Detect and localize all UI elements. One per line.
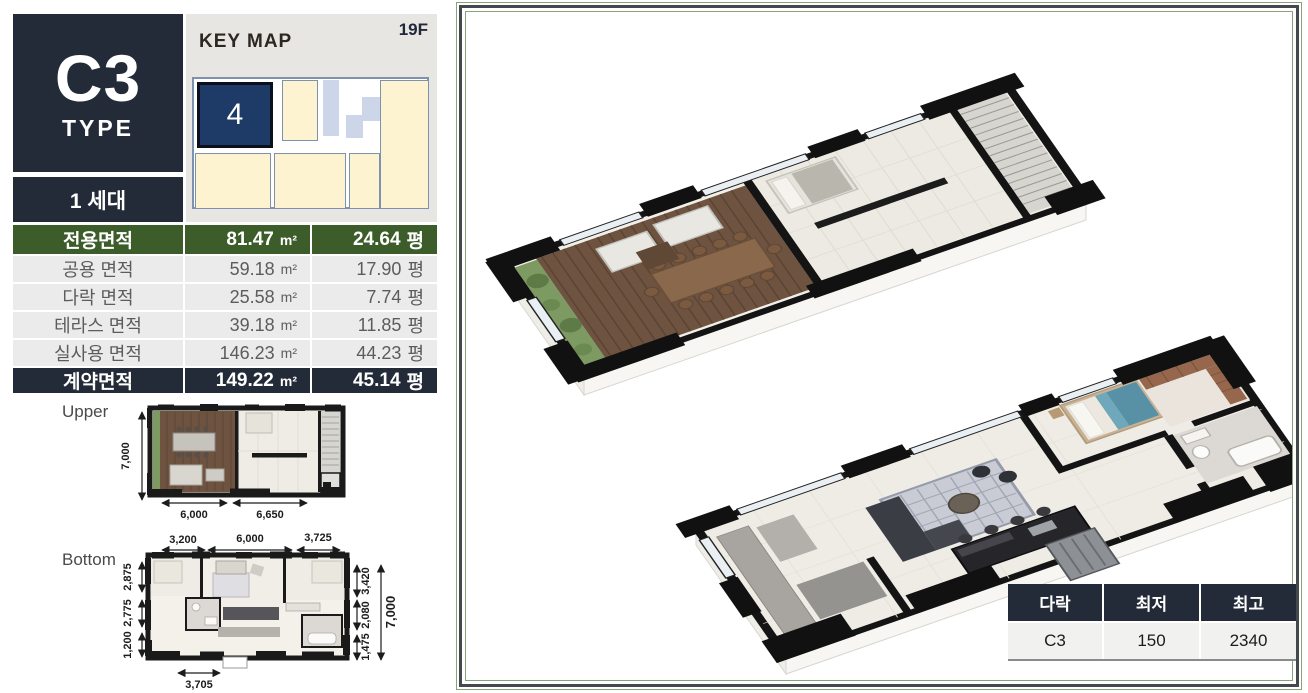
unit-m2: m²	[281, 317, 297, 333]
kitchen-counter	[218, 627, 280, 637]
bathtub	[308, 633, 336, 644]
keymap-unit-block	[380, 80, 429, 209]
keymap-panel: KEY MAP 19F 4	[186, 14, 437, 222]
dining-table	[173, 433, 215, 451]
area-footer-pyeong: 45.14 평	[312, 368, 437, 393]
value: 44.23	[356, 343, 401, 364]
value: 11.85	[358, 315, 402, 336]
unit-type-label: TYPE	[62, 115, 134, 142]
keymap-unit-block	[195, 153, 271, 209]
unit-m2: m²	[281, 345, 297, 361]
dim-label: 6,000	[236, 533, 264, 545]
area-row-pyeong: 11.85 평	[312, 312, 437, 338]
dim-label: 6,000	[180, 509, 208, 521]
wardrobe-row	[286, 603, 320, 611]
attic-cell: C3	[1008, 623, 1102, 659]
keymap-unit-block	[282, 80, 318, 141]
keymap-core-block	[346, 115, 363, 138]
area-row-pyeong: 44.23 평	[312, 340, 437, 366]
area-header-pyeong: 24.64 평	[312, 225, 437, 254]
keymap-core-block	[323, 80, 339, 136]
dim-label: 1,475	[360, 633, 372, 661]
upper-plan-label: Upper	[62, 402, 109, 421]
unit-m2: m²	[281, 289, 297, 305]
area-row-m2: 59.18 m²	[185, 256, 310, 282]
floor-3d-render	[466, 12, 1292, 680]
household-count-box: 1 세대	[13, 177, 183, 222]
keymap-core-block	[362, 97, 380, 121]
unit-pyeong: 평	[407, 284, 424, 310]
kitchen-island	[223, 607, 279, 620]
dim-label: 7,000	[120, 442, 132, 470]
attic-col-header: 최저	[1104, 584, 1199, 621]
area-footer-m2: 149.22 m²	[185, 368, 310, 393]
value: 17.90	[356, 259, 401, 280]
loft-bed	[246, 413, 272, 433]
value: 59.18	[230, 259, 275, 280]
value: 7.74	[366, 287, 401, 308]
bed-right	[312, 561, 342, 583]
area-row-m2: 39.18 m²	[185, 312, 310, 338]
dim-label: 7,000	[383, 596, 398, 629]
dim-label: 2,875	[122, 563, 134, 591]
area-row-label: 공용 면적	[13, 256, 183, 282]
value: 39.18	[230, 315, 275, 336]
bottom-plan: Bottom 3,200 6,000 3,725	[62, 532, 398, 691]
area-table: 전용면적 81.47 m² 24.64 평 공용 면적 59.18 m² 17.…	[13, 225, 437, 393]
entry-porch	[223, 657, 247, 668]
value: 45.14	[353, 370, 401, 392]
value: 25.58	[230, 287, 275, 308]
area-row-label: 실사용 면적	[13, 340, 183, 366]
unit-pyeong: 평	[407, 367, 424, 394]
area-row-label: 테라스 면적	[13, 312, 183, 338]
area-row-pyeong: 7.74 평	[312, 284, 437, 310]
dim-label: 2,080	[360, 601, 372, 629]
dim-label: 3,420	[360, 567, 372, 595]
area-row-label: 다락 면적	[13, 284, 183, 310]
planting-strip	[153, 411, 160, 492]
render-panel: 다락 최저 최고 C3 150 2340	[456, 2, 1302, 690]
living-rug	[213, 573, 249, 597]
area-footer-label: 계약면적	[13, 368, 183, 393]
unit-m2: m²	[281, 261, 297, 277]
unit-m2: m²	[280, 232, 297, 248]
attic-cell: 2340	[1201, 623, 1296, 659]
attic-col-header: 다락	[1008, 584, 1102, 621]
bottom-plan-label: Bottom	[62, 550, 116, 569]
value: 146.23	[220, 343, 275, 364]
attic-height-table: 다락 최저 최고 C3 150 2340	[1008, 584, 1296, 661]
dim-label: 2,775	[122, 599, 134, 627]
unit-type-code: C3	[55, 45, 141, 111]
area-header-m2: 81.47 m²	[185, 225, 310, 254]
unit-type-box: C3 TYPE	[13, 14, 183, 172]
upper-plan: Upper 7,000	[62, 402, 343, 521]
area-row-m2: 25.58 m²	[185, 284, 310, 310]
floor-plans-2d: Upper 7,000	[40, 395, 440, 693]
attic-col-header: 최고	[1201, 584, 1296, 621]
terrace-sofa	[170, 465, 202, 485]
living-sofa	[216, 561, 246, 574]
unit-pyeong: 평	[407, 312, 424, 338]
bed-left	[154, 561, 182, 583]
value: 81.47	[226, 229, 274, 251]
dim-label: 3,725	[304, 532, 332, 544]
unit-pyeong: 평	[407, 256, 424, 282]
keymap-unit-block	[349, 153, 380, 209]
terrace-armchair	[206, 469, 224, 481]
value: 149.22	[216, 370, 274, 392]
dim-label: 3,705	[185, 679, 213, 691]
dim-label: 3,200	[169, 534, 197, 546]
unit-pyeong: 평	[407, 340, 424, 366]
unit-pyeong: 평	[407, 226, 424, 253]
unit-m2: m²	[280, 373, 297, 389]
value: 24.64	[353, 229, 401, 251]
area-header-label: 전용면적	[13, 225, 183, 254]
keymap-floor-badge: 19F	[399, 20, 428, 40]
area-row-m2: 146.23 m²	[185, 340, 310, 366]
brochure-page: C3 TYPE 1 세대 KEY MAP 19F 4 전용면적 81.47 m²…	[0, 0, 1308, 693]
dim-label: 6,650	[256, 509, 284, 521]
keymap-diagram: 4	[192, 77, 429, 209]
keymap-title: KEY MAP	[199, 31, 292, 53]
attic-cell: 150	[1104, 623, 1199, 659]
frame-inner: 다락 최저 최고 C3 150 2340	[465, 11, 1293, 681]
keymap-highlighted-unit: 4	[197, 82, 273, 148]
area-row-pyeong: 17.90 평	[312, 256, 437, 282]
dim-label: 1,200	[122, 631, 134, 659]
keymap-unit-block	[274, 153, 346, 209]
stair-opening	[252, 453, 307, 458]
